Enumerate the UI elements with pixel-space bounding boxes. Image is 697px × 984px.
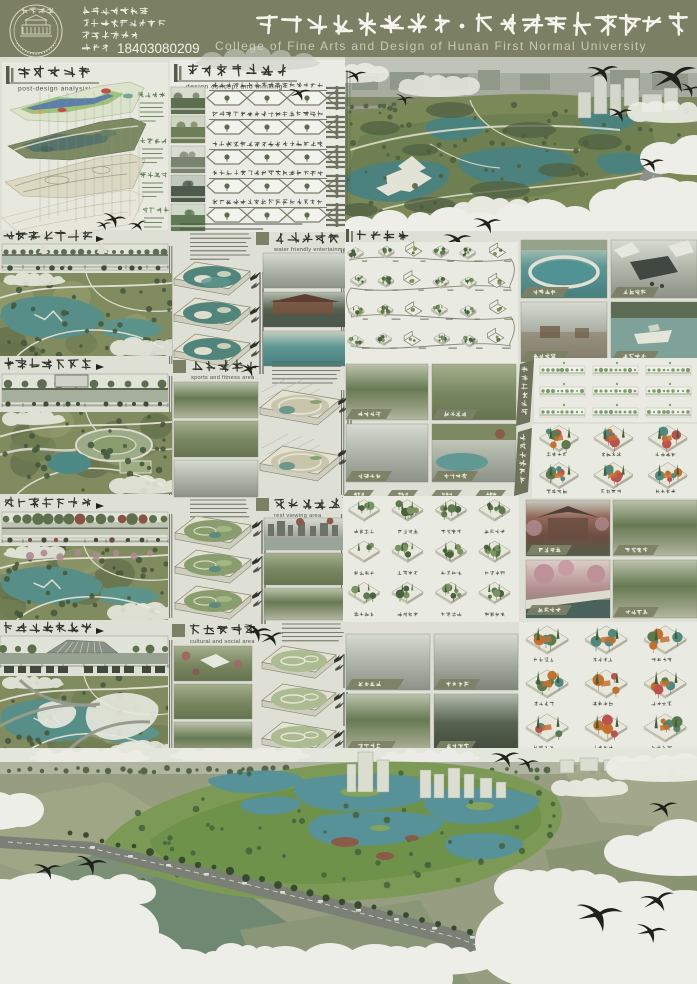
svg-text:18403080209: 18403080209	[117, 41, 200, 56]
